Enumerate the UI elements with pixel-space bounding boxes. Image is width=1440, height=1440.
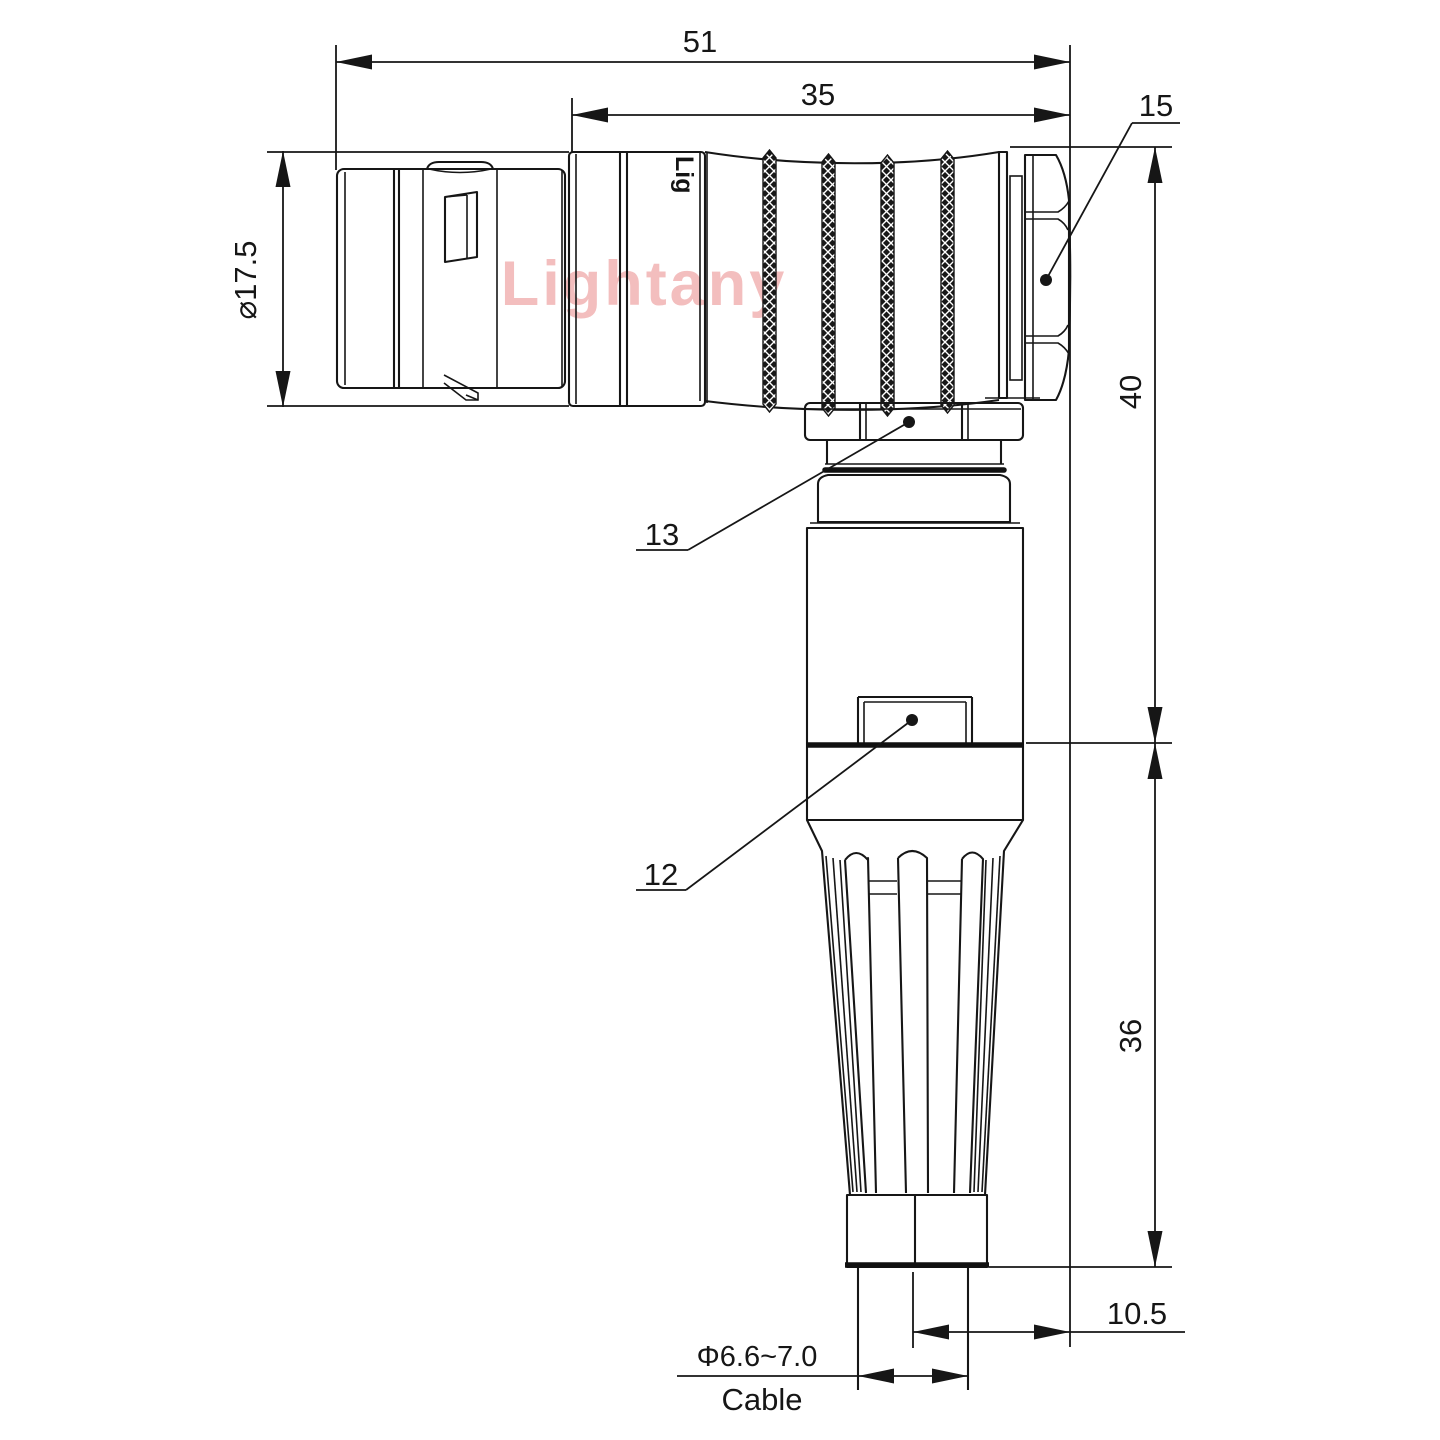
knurl-band [941,151,954,413]
dim-cable-diameter-text: Φ6.6~7.0 [697,1341,818,1373]
label-latch-text: 12 [644,857,678,892]
dim-body-length-text: 35 [801,77,835,112]
knurl-band [763,150,776,412]
cable-label-text: Cable [722,1382,803,1417]
connector-drawing-canvas: Lightany [0,0,1440,1440]
watermark-text: Lightany [501,249,788,319]
label-hex-nut-text: 15 [1139,88,1173,123]
dim-overall-length-text: 51 [683,24,717,59]
dim-cable-offset-text: 10.5 [1107,1296,1167,1331]
dim-shell-diameter-text: ⌀17.5 [228,241,263,320]
knurl-band [822,154,835,416]
label-collar-text: 13 [645,517,679,552]
drawing-background [0,0,1440,1440]
body-marking-text: Lig [670,156,698,194]
technical-drawing-page: Lightany [0,0,1440,1440]
dim-elbow-height-text: 40 [1113,375,1148,409]
knurl-band [881,155,894,416]
dim-boot-height-text: 36 [1113,1019,1148,1053]
